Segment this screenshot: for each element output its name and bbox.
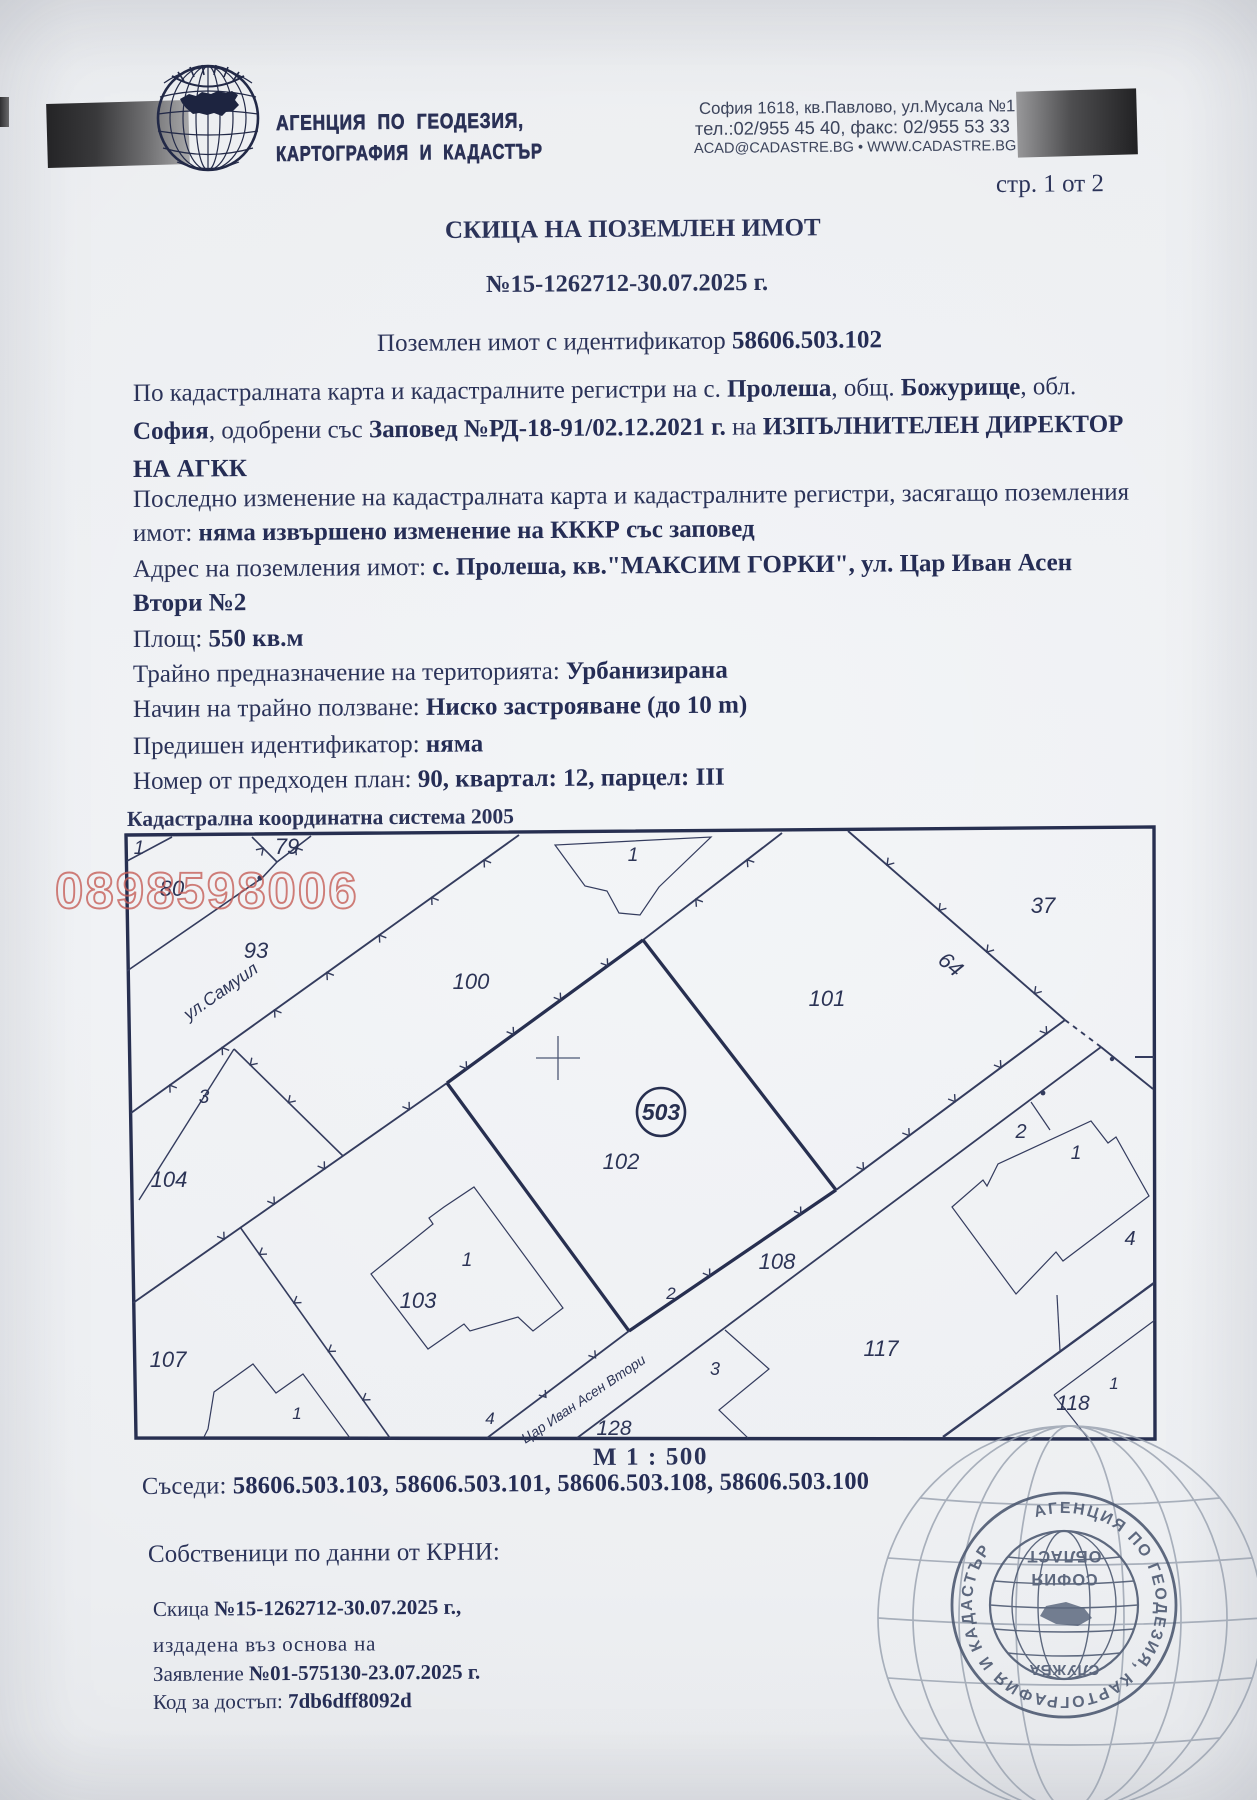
svg-text:100: 100	[453, 969, 490, 994]
svg-text:2: 2	[665, 1284, 676, 1303]
svg-text:1: 1	[134, 838, 145, 859]
svg-text:1: 1	[462, 1250, 473, 1271]
svg-text:103: 103	[400, 1288, 437, 1313]
svg-text:1: 1	[628, 845, 639, 866]
svg-text:СОФИЯ: СОФИЯ	[1030, 1570, 1097, 1588]
svg-text:107: 107	[150, 1347, 187, 1372]
svg-text:503: 503	[642, 1099, 681, 1125]
svg-text:104: 104	[151, 1167, 188, 1192]
svg-text:101: 101	[809, 986, 846, 1011]
svg-text:108: 108	[759, 1249, 796, 1274]
svg-text:102: 102	[603, 1149, 640, 1174]
svg-text:118: 118	[1056, 1392, 1090, 1415]
svg-text:СЛУЖБА: СЛУЖБА	[1029, 1661, 1100, 1678]
svg-text:3: 3	[710, 1359, 720, 1379]
svg-text:1: 1	[292, 1404, 301, 1423]
svg-text:0898598006: 0898598006	[55, 862, 359, 919]
svg-text:4: 4	[1124, 1228, 1135, 1250]
svg-text:ОБЛАСТ: ОБЛАСТ	[1027, 1547, 1102, 1565]
svg-text:1: 1	[1071, 1143, 1082, 1164]
svg-text:128: 128	[596, 1417, 631, 1440]
svg-text:37: 37	[1031, 893, 1056, 918]
svg-text:2: 2	[1014, 1121, 1026, 1143]
svg-text:64: 64	[933, 947, 968, 982]
svg-text:1: 1	[1109, 1374, 1118, 1393]
svg-text:79: 79	[275, 834, 299, 859]
svg-text:117: 117	[863, 1336, 899, 1361]
svg-text:4: 4	[485, 1409, 494, 1428]
svg-text:3: 3	[199, 1087, 210, 1108]
svg-text:ул.Самуил: ул.Самуил	[179, 958, 262, 1024]
